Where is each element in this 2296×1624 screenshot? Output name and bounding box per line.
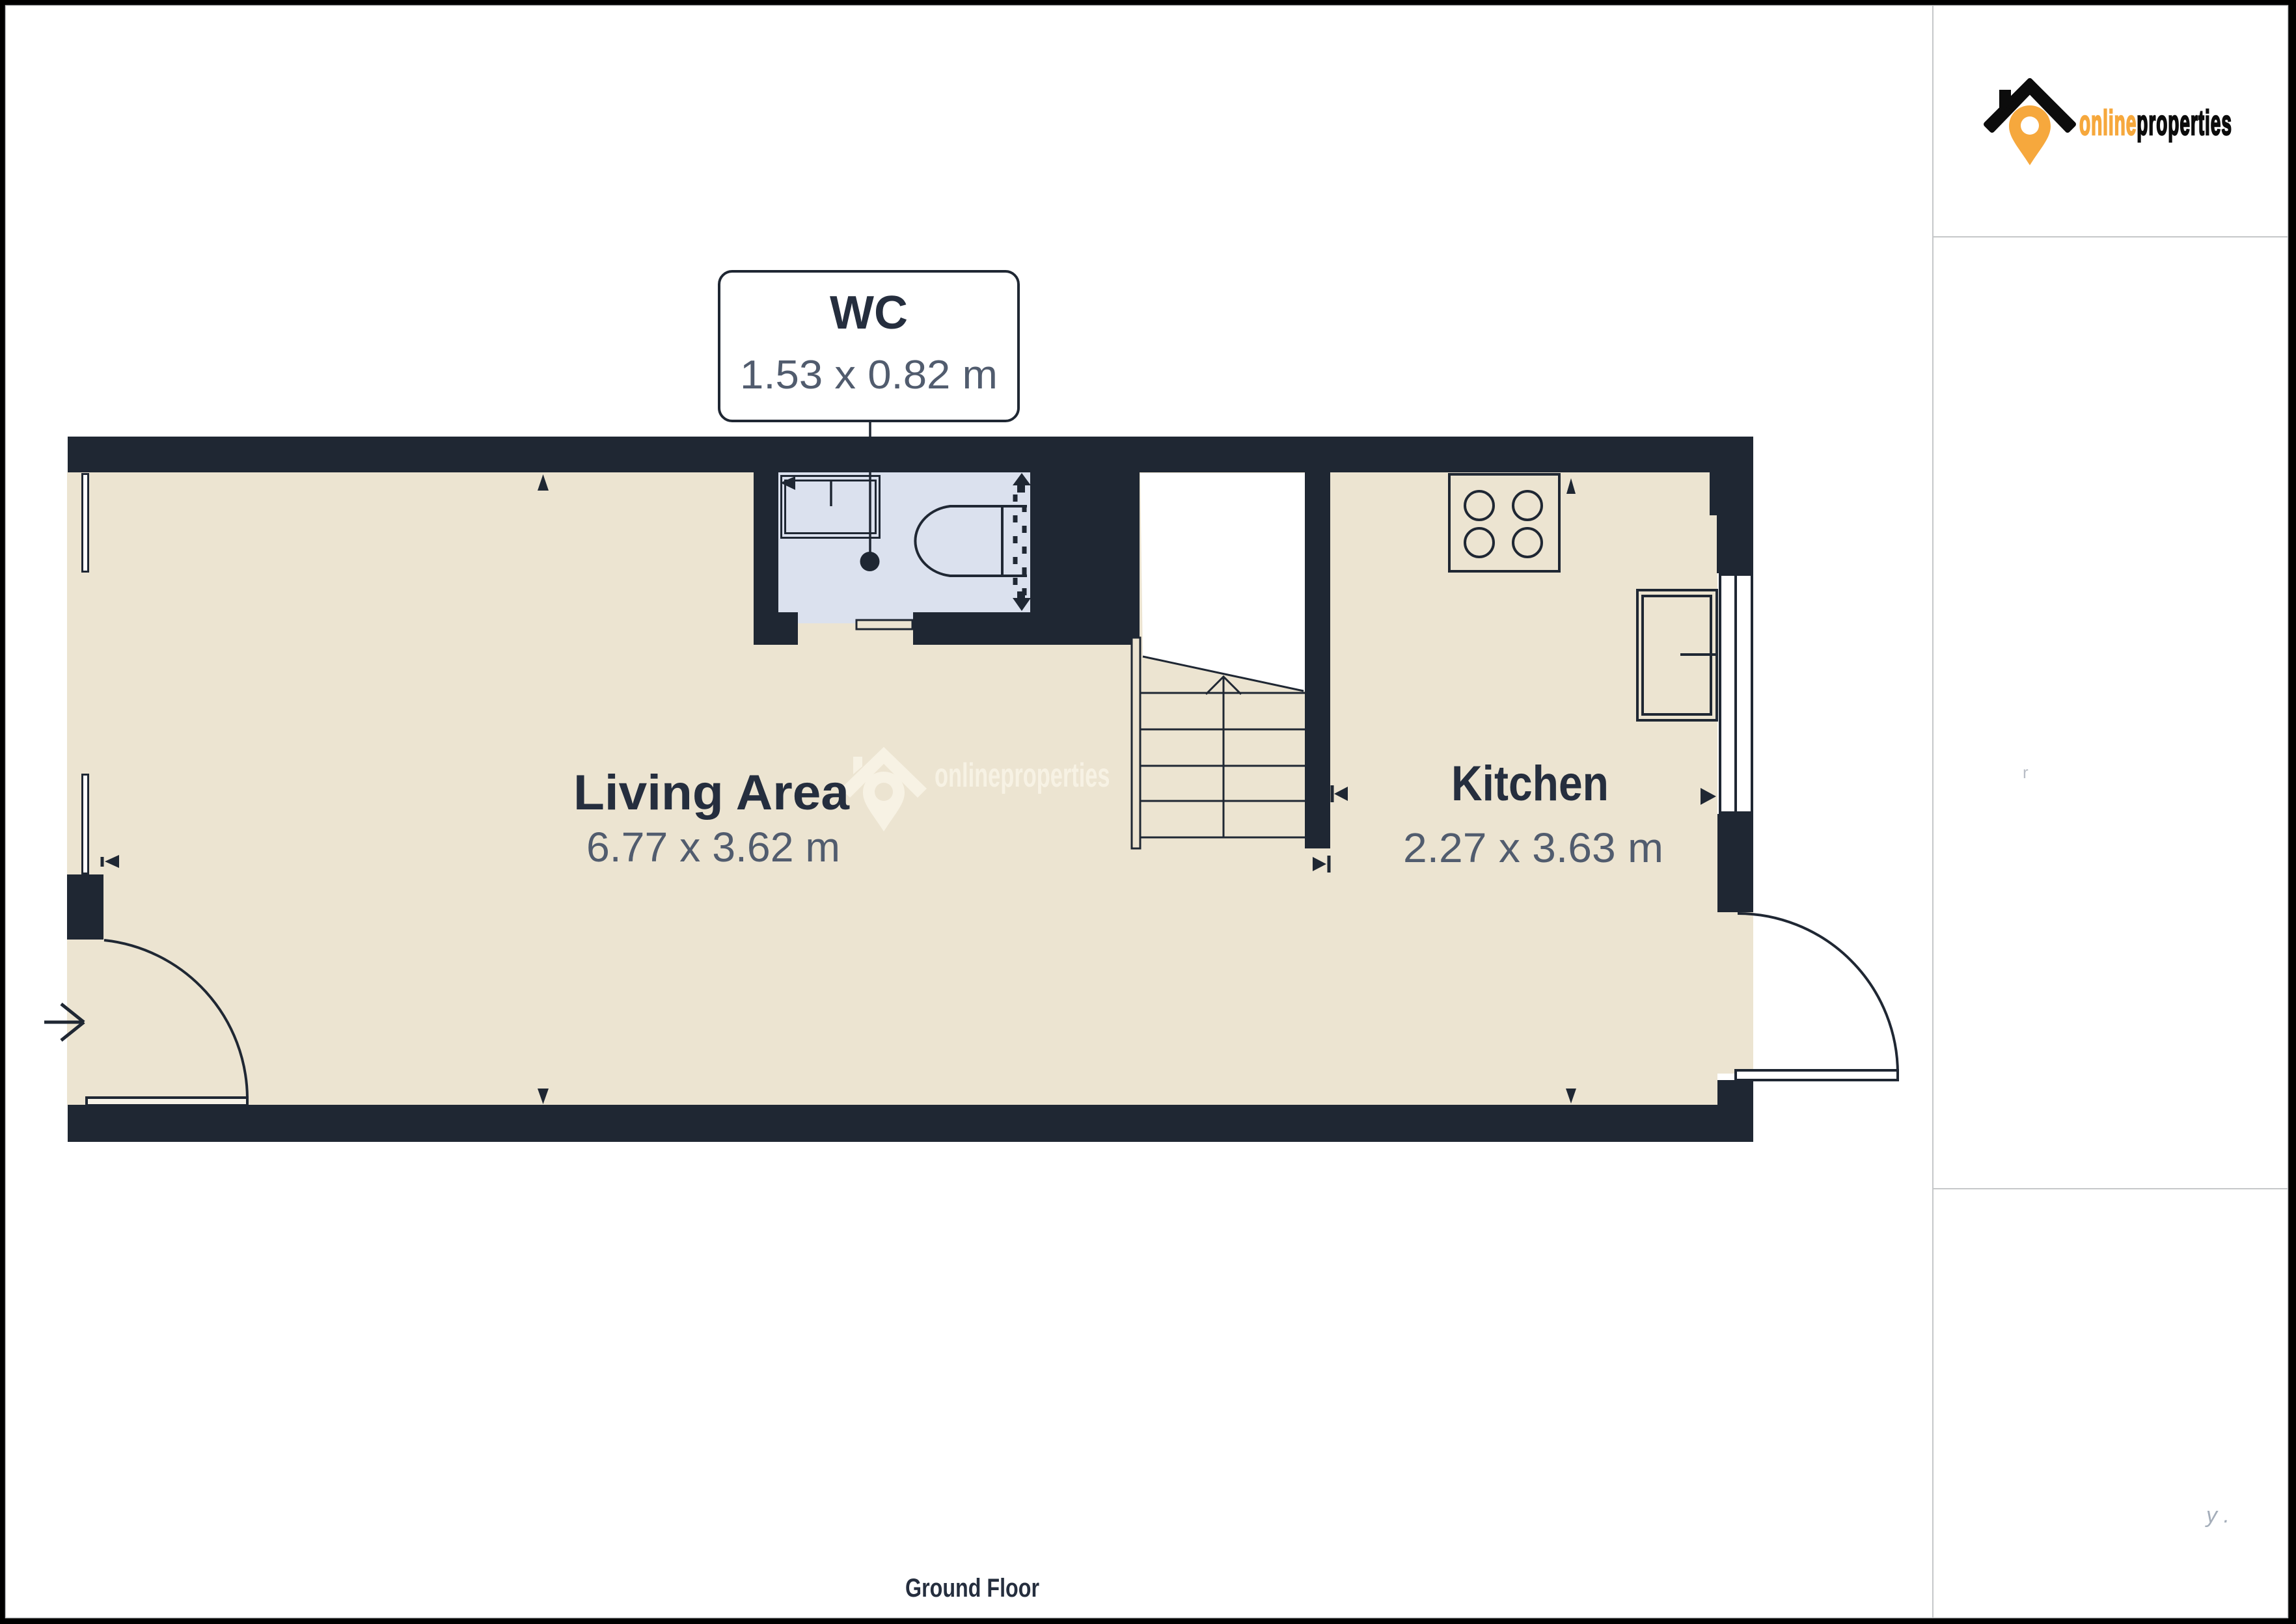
svg-text:6.77 x 3.62 m: 6.77 x 3.62 m [586, 824, 840, 871]
svg-text:r: r [2023, 763, 2029, 782]
svg-text:1.53 x 0.82 m: 1.53 x 0.82 m [740, 353, 998, 398]
svg-text:Living Area: Living Area [573, 765, 850, 820]
svg-text:onlineproperties: onlineproperties [935, 757, 1110, 794]
svg-text:WC: WC [830, 287, 908, 339]
svg-text:2.27 x 3.63 m: 2.27 x 3.63 m [1403, 824, 1663, 871]
svg-text:Ground Floor: Ground Floor [905, 1574, 1039, 1603]
svg-text:Kitchen: Kitchen [1451, 756, 1609, 811]
svg-text:onlineproperties: onlineproperties [2079, 103, 2232, 142]
svg-text:y .: y . [2205, 1503, 2230, 1528]
